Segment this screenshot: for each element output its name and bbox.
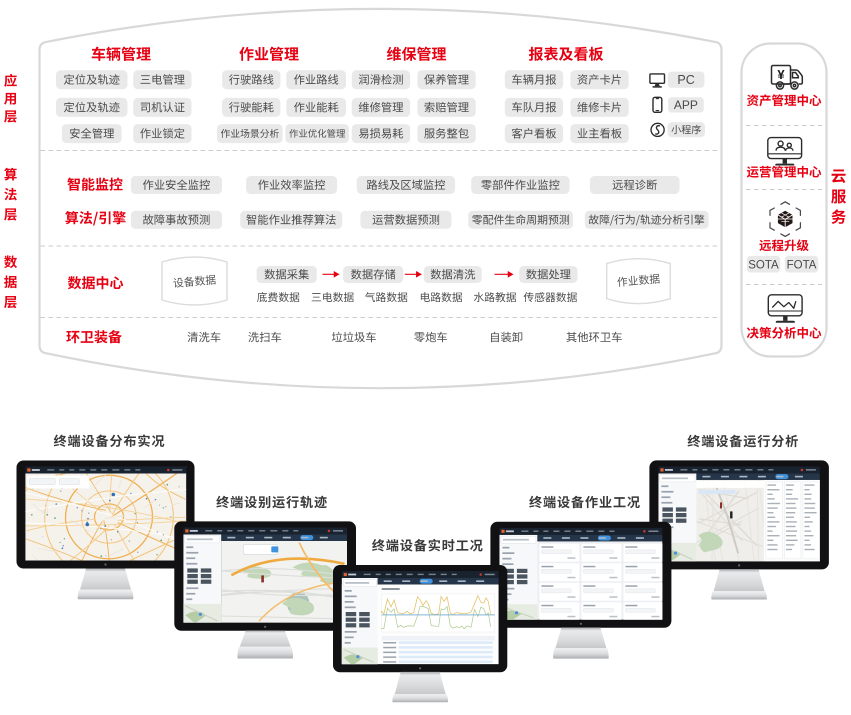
svg-text:¥: ¥ [777, 67, 785, 82]
svg-text:PC: PC [677, 73, 694, 87]
svg-text:SOTA: SOTA [748, 259, 779, 271]
svg-text:FOTA: FOTA [787, 259, 817, 271]
svg-text:APP: APP [674, 98, 698, 112]
